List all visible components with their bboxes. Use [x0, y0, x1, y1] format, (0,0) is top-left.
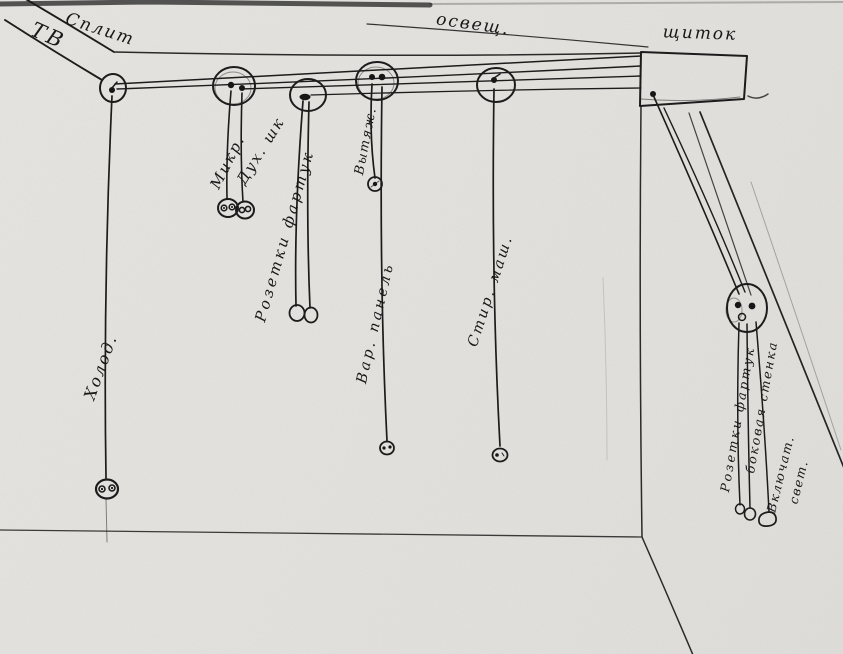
wiring-sketch-svg	[0, 0, 843, 654]
scan-edge-dark	[0, 2, 430, 5]
sketch-canvas: ТВ Сплит освещ. щиток Микр. Дух. шк Розе…	[0, 0, 843, 654]
label-panel: щиток	[662, 24, 737, 44]
paper-texture	[0, 0, 843, 654]
panel-terminal-dot	[650, 91, 656, 97]
